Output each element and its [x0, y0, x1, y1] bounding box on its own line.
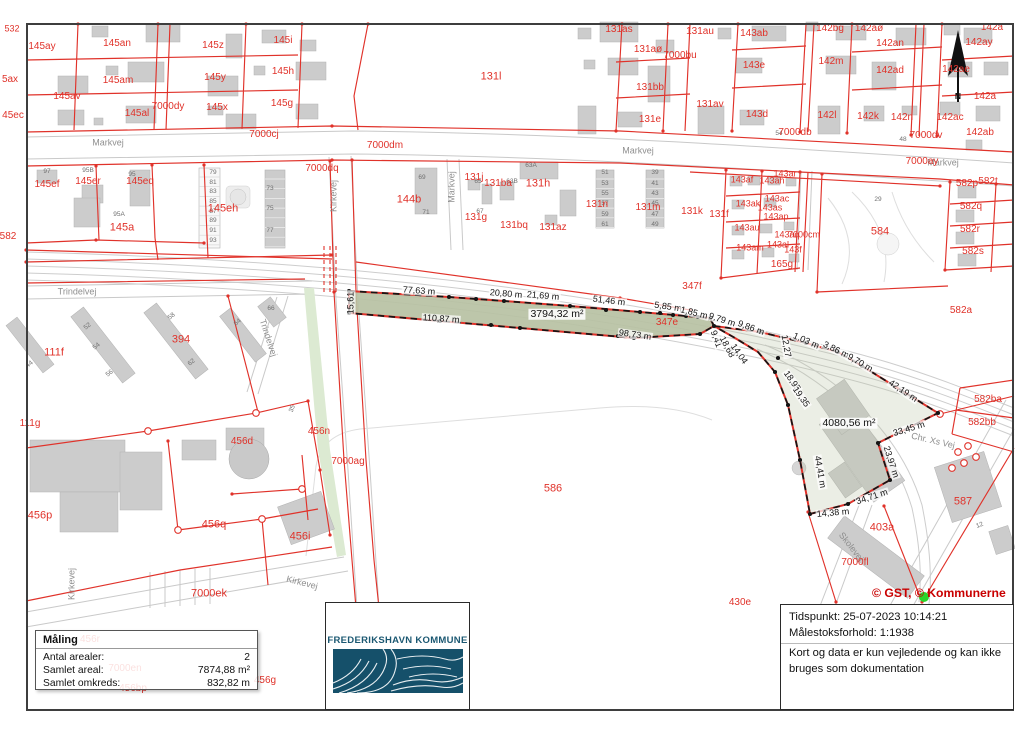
row-value: 832,82 m — [207, 677, 250, 690]
row-label: Samlet areal: — [43, 664, 104, 677]
measurement-panel-title: Måling — [36, 631, 257, 648]
divider — [36, 648, 257, 649]
measurement-row: Samlet areal: 7874,88 m² — [36, 664, 257, 677]
measurement-row: Samlet omkreds: 832,82 m — [36, 677, 257, 690]
timestamp-text: Tidspunkt: 25-07-2023 10:14:21 — [789, 610, 1005, 626]
row-value: 7874,88 m² — [198, 664, 250, 677]
scale-text: Målestoksforhold: 1:1938 — [789, 626, 1005, 642]
copyright-text: © GST, © Kommunerne — [872, 586, 1006, 600]
disclaimer-text: Kort og data er kun vejledende og kan ik… — [789, 646, 1005, 677]
divider — [781, 643, 1013, 644]
measurement-row: Antal arealer: 2 — [36, 651, 257, 664]
municipality-logo-text: FREDERIKSHAVN KOMMUNE — [326, 635, 469, 646]
municipality-logo-box: FREDERIKSHAVN KOMMUNE — [325, 602, 470, 710]
margin-bottom — [0, 712, 1024, 725]
row-label: Samlet omkreds: — [43, 677, 120, 690]
row-label: Antal arealer: — [43, 651, 104, 664]
logo-wave-icon — [333, 649, 463, 693]
north-arrow-label: N — [955, 91, 961, 101]
map-info-panel: Tidspunkt: 25-07-2023 10:14:21 Målestoks… — [780, 604, 1014, 710]
margin-right — [1015, 0, 1024, 725]
measurement-result-panel: Måling Antal arealer: 2 Samlet areal: 78… — [35, 630, 258, 690]
row-value: 2 — [244, 651, 250, 664]
